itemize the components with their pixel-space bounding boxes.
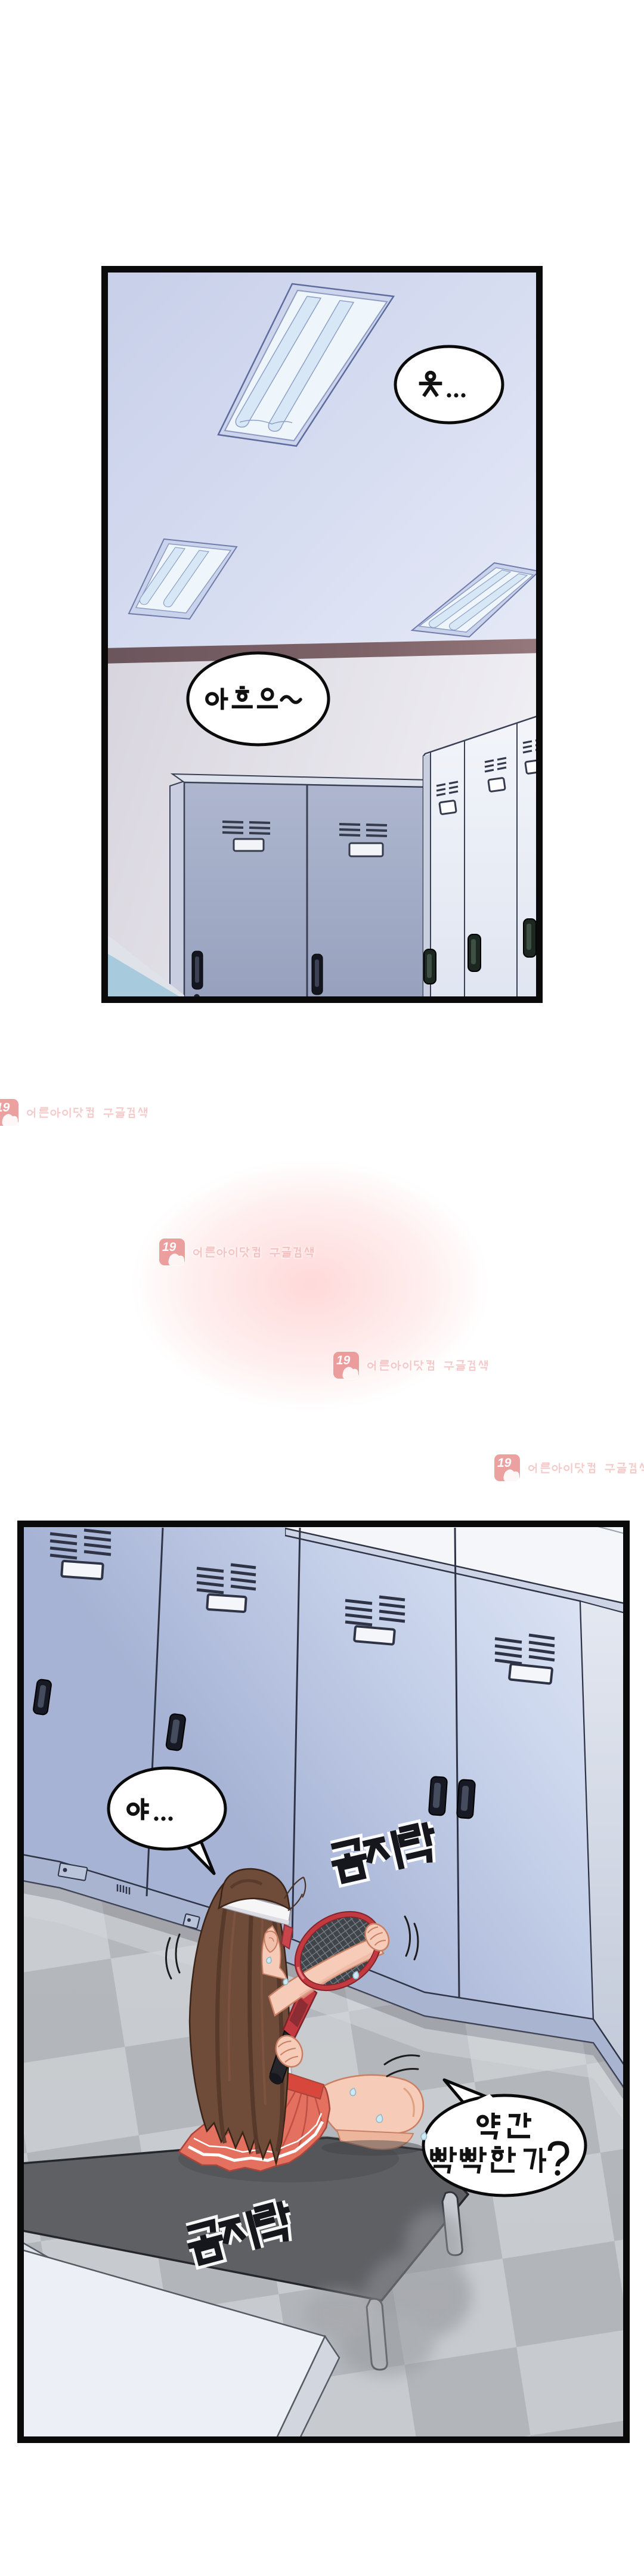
svg-text:19: 19 <box>0 1101 10 1114</box>
